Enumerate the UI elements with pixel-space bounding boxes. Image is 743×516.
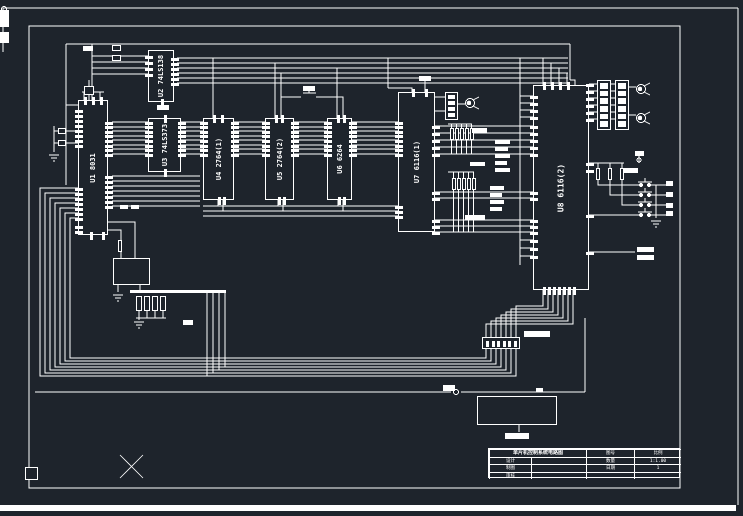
chip-pin xyxy=(586,163,594,166)
chip-pin xyxy=(105,186,113,189)
net-label xyxy=(637,255,654,260)
title-block-cell xyxy=(634,472,681,480)
chip-pin xyxy=(200,131,208,134)
chip-pin xyxy=(200,140,208,143)
chip-pin xyxy=(105,140,113,143)
chip-pin xyxy=(530,248,538,251)
chip-pin xyxy=(530,198,538,201)
chip-pin xyxy=(262,126,270,129)
chip-label: U5 2764(2) xyxy=(276,138,284,180)
chip-pin xyxy=(349,154,357,157)
pushbutton-icon[interactable] xyxy=(640,214,643,217)
pushbutton-icon[interactable] xyxy=(640,204,643,207)
chip-label: U3 74LS373 xyxy=(161,124,169,166)
contact-cell[interactable] xyxy=(136,296,142,311)
chip-pin xyxy=(262,131,270,134)
chip-pin xyxy=(291,122,299,125)
net-label xyxy=(490,200,504,204)
transistor-leads xyxy=(644,112,650,124)
resistor[interactable] xyxy=(450,128,454,140)
net-label xyxy=(443,385,455,391)
connector-pin-pad xyxy=(514,341,517,347)
pack-element xyxy=(618,121,626,127)
pack-element xyxy=(618,91,626,97)
small-component[interactable] xyxy=(112,55,121,61)
chip-pin xyxy=(432,198,440,201)
chip-pin xyxy=(105,131,113,134)
resistor[interactable] xyxy=(118,240,122,252)
title-block-cell: 制图 xyxy=(489,464,531,472)
pack-element xyxy=(448,101,455,105)
chip-pin xyxy=(395,145,403,148)
chip-pin xyxy=(324,122,332,125)
chip-pin xyxy=(221,115,224,123)
net-label xyxy=(472,128,487,133)
net-label xyxy=(470,162,485,166)
chip-pin xyxy=(586,91,594,94)
chip-pin xyxy=(432,220,440,223)
chip-pin xyxy=(432,133,440,136)
chip-pin xyxy=(432,226,440,229)
chip-pin xyxy=(425,89,428,97)
resistor[interactable] xyxy=(596,168,600,180)
chip-pin xyxy=(530,192,538,195)
connector-pin-pad xyxy=(497,341,500,347)
transistor-leads xyxy=(473,97,479,109)
chip-pin xyxy=(395,122,403,125)
transistor-leads xyxy=(644,83,650,95)
chip-pin xyxy=(231,140,239,143)
chip-pin xyxy=(324,145,332,148)
pack-element xyxy=(600,114,608,120)
chip-pin xyxy=(558,287,561,295)
chip-pin xyxy=(395,149,403,152)
chip-pin xyxy=(105,181,113,184)
title-block-cell: 单片机控制系统电路图 xyxy=(489,449,586,457)
chip-pin xyxy=(145,154,153,157)
chip-pin xyxy=(568,287,571,295)
chip-pin xyxy=(100,97,103,105)
resistor[interactable] xyxy=(608,168,612,180)
ui-left-tab[interactable] xyxy=(0,10,9,27)
chip-label: U2 74LS138 xyxy=(157,55,165,97)
resistor[interactable] xyxy=(460,128,464,140)
chip-pin xyxy=(200,135,208,138)
chip-pin xyxy=(324,126,332,129)
chip-pin xyxy=(567,82,570,90)
chip-pin xyxy=(349,122,357,125)
resistor[interactable] xyxy=(457,178,461,190)
net-label xyxy=(419,76,431,81)
chip-pin xyxy=(530,154,538,157)
chip-pin xyxy=(223,197,226,205)
chip-pin xyxy=(324,131,332,134)
chip-pin xyxy=(262,149,270,152)
resistor[interactable] xyxy=(467,178,471,190)
chip-pin xyxy=(75,218,83,221)
chip-pin xyxy=(145,126,153,129)
chip-pin xyxy=(231,145,239,148)
pack-element xyxy=(600,98,608,104)
net-label xyxy=(131,205,139,209)
title-block-cell: 比例 xyxy=(634,449,681,457)
chip-pin xyxy=(262,122,270,125)
chip-pin xyxy=(432,140,440,143)
resistor[interactable] xyxy=(452,178,456,190)
chip-pin xyxy=(75,213,83,216)
pack-element xyxy=(618,114,626,120)
chip-pin xyxy=(530,96,538,99)
chip-pin xyxy=(432,192,440,195)
chip-pin xyxy=(586,170,594,173)
chip-pin xyxy=(551,82,554,90)
chip-u5[interactable]: U5 2764(2) xyxy=(265,118,294,200)
chip-pin xyxy=(262,140,270,143)
chip-pin xyxy=(281,115,284,123)
net-label xyxy=(666,192,673,197)
chip-pin xyxy=(586,98,594,101)
chip-u4[interactable]: U4 2764(1) xyxy=(203,118,234,200)
chip-pin xyxy=(171,73,179,76)
chip-pin xyxy=(530,140,538,143)
pushbutton-icon[interactable] xyxy=(648,194,651,197)
net-label xyxy=(490,193,502,197)
net-label xyxy=(490,207,502,211)
chip-pin xyxy=(75,110,83,113)
chip-u2[interactable]: U2 74LS138 xyxy=(148,50,174,102)
chip-pin xyxy=(349,135,357,138)
title-block-cell: 审核 xyxy=(489,472,531,480)
chip-pin xyxy=(105,176,113,179)
chip-label: U7 6116(1) xyxy=(413,141,421,183)
chip-pin xyxy=(395,154,403,157)
chip-pin xyxy=(171,58,179,61)
chip-pin xyxy=(324,149,332,152)
chip-pin xyxy=(92,97,95,105)
resistor-pack-1[interactable] xyxy=(597,80,611,130)
chip-pin xyxy=(563,287,566,295)
chip-pin xyxy=(75,120,83,123)
chip-pin xyxy=(145,140,153,143)
chip-pin xyxy=(75,115,83,118)
chip-pin xyxy=(586,112,594,115)
chip-pin xyxy=(105,196,113,199)
chip-pin xyxy=(324,154,332,157)
chip-pin xyxy=(145,56,153,59)
chip-pin xyxy=(178,126,186,129)
chip-pin xyxy=(75,145,83,148)
chip-pin xyxy=(349,126,357,129)
chip-pin xyxy=(178,135,186,138)
chip-pin xyxy=(171,78,179,81)
connector-pin-pad xyxy=(508,341,511,347)
chip-pin xyxy=(343,115,346,123)
pack-element xyxy=(448,107,455,111)
net-label xyxy=(637,247,654,252)
chip-pin xyxy=(275,115,278,123)
chip-pin xyxy=(200,122,208,125)
chip-pin xyxy=(586,105,594,108)
connector-pin-pad xyxy=(492,341,495,347)
chip-pin xyxy=(75,231,83,234)
chip-pin xyxy=(586,252,594,255)
pushbutton-icon[interactable] xyxy=(648,214,651,217)
resistor[interactable] xyxy=(465,128,469,140)
net-label xyxy=(495,168,510,172)
crystal-capacitor[interactable] xyxy=(58,128,66,134)
resistor-pack-2[interactable] xyxy=(615,80,629,130)
chip-pin xyxy=(75,203,83,206)
chip-pin xyxy=(262,154,270,157)
chip-pin xyxy=(395,206,403,209)
chip-pin xyxy=(90,232,93,240)
pack-element xyxy=(618,106,626,112)
chip-pin xyxy=(178,154,186,157)
net-label xyxy=(666,211,673,216)
chip-pin xyxy=(291,131,299,134)
schematic-wires xyxy=(0,0,743,516)
chip-pin xyxy=(75,140,83,143)
connector-pin-pad xyxy=(486,341,489,347)
chip-pin xyxy=(231,131,239,134)
chip-pin xyxy=(349,145,357,148)
chip-pin xyxy=(164,115,167,123)
transistor-icon[interactable] xyxy=(467,101,471,105)
title-block-cell: 日期 xyxy=(586,464,634,472)
chip-u1[interactable]: U1 8031 xyxy=(78,100,108,235)
chip-pin xyxy=(324,140,332,143)
chip-pin xyxy=(291,140,299,143)
chip-pin xyxy=(145,122,153,125)
chip-pin xyxy=(395,211,403,214)
net-label xyxy=(183,320,193,325)
pack-element xyxy=(600,83,608,89)
chip-pin xyxy=(586,84,594,87)
title-block-cell: 1 xyxy=(634,464,681,472)
chip-pin xyxy=(395,216,403,219)
pack-element xyxy=(600,106,608,112)
chip-pin xyxy=(586,215,594,218)
chip-pin xyxy=(178,131,186,134)
chip-pin xyxy=(102,232,105,240)
chip-pin xyxy=(543,287,546,295)
resistor-pack-3[interactable] xyxy=(445,92,458,120)
pushbutton-icon[interactable] xyxy=(648,204,651,207)
net-label xyxy=(495,140,510,144)
net-label xyxy=(536,388,543,392)
chip-pin xyxy=(213,115,216,123)
chip-pin xyxy=(543,82,546,90)
pushbutton-icon[interactable] xyxy=(648,184,651,187)
chip-pin xyxy=(530,256,538,259)
chip-pin xyxy=(530,232,538,235)
chip-pin xyxy=(178,140,186,143)
chip-pin xyxy=(75,198,83,201)
chip-pin xyxy=(231,149,239,152)
transistor-icon[interactable] xyxy=(638,116,642,120)
chip-pin xyxy=(105,126,113,129)
pushbutton-icon[interactable] xyxy=(640,194,643,197)
net-label xyxy=(666,203,673,208)
chip-u6[interactable]: U6 6264 xyxy=(327,118,352,200)
chip-pin xyxy=(349,140,357,143)
bus-bar xyxy=(130,290,226,293)
small-component[interactable] xyxy=(84,86,94,95)
net-label xyxy=(635,151,644,156)
ui-left-tab[interactable] xyxy=(0,32,9,43)
chip-pin xyxy=(530,133,538,136)
chip-pin xyxy=(324,135,332,138)
chip-pin xyxy=(75,193,83,196)
net-label xyxy=(490,186,504,190)
chip-pin xyxy=(231,126,239,129)
chip-pin xyxy=(145,68,153,71)
chip-pin xyxy=(105,191,113,194)
contact-cell[interactable] xyxy=(160,296,166,311)
chip-pin xyxy=(559,82,562,90)
pack-element xyxy=(448,113,455,117)
net-label xyxy=(524,331,550,337)
chip-pin xyxy=(530,117,538,120)
net-label xyxy=(495,154,510,158)
chip-pin xyxy=(145,131,153,134)
pack-element xyxy=(618,98,626,104)
title-block-cell: 图号 xyxy=(586,449,634,457)
chip-pin xyxy=(291,135,299,138)
chip-pin xyxy=(283,197,286,205)
chip-pin xyxy=(145,74,153,77)
net-label xyxy=(83,46,93,51)
chip-pin xyxy=(105,154,113,157)
chip-pin xyxy=(395,140,403,143)
connector-header[interactable] xyxy=(482,337,520,349)
net-label xyxy=(666,181,673,186)
chip-pin xyxy=(171,83,179,86)
chip-pin xyxy=(530,226,538,229)
chip-pin xyxy=(337,115,340,123)
contact-cell[interactable] xyxy=(144,296,150,311)
small-component[interactable] xyxy=(112,45,121,51)
cad-canvas[interactable]: U1 8031U2 74LS138U3 74LS373U4 2764(1)U5 … xyxy=(0,0,743,516)
contact-cell[interactable] xyxy=(152,296,158,311)
chip-pin xyxy=(75,188,83,191)
title-block-cell xyxy=(531,457,586,465)
chip-label: U8 6116(2) xyxy=(557,163,566,211)
chip-pin xyxy=(291,149,299,152)
chip-pin xyxy=(553,287,556,295)
pack-element xyxy=(448,95,455,99)
chip-pin xyxy=(200,154,208,157)
chip-pin xyxy=(231,154,239,157)
chip-pin xyxy=(145,145,153,148)
resistor[interactable] xyxy=(472,178,476,190)
chip-pin xyxy=(105,201,113,204)
title-block-cell xyxy=(531,464,586,472)
net-label xyxy=(120,205,128,209)
chip-pin xyxy=(105,145,113,148)
optocoupler-box[interactable] xyxy=(113,258,150,285)
chip-pin xyxy=(231,135,239,138)
module-box[interactable] xyxy=(477,396,557,425)
chip-pin xyxy=(105,122,113,125)
net-label xyxy=(495,147,508,151)
chip-pin xyxy=(171,68,179,71)
title-block-cell: 数量 xyxy=(586,457,634,465)
chip-pin xyxy=(75,208,83,211)
chip-pin xyxy=(412,89,415,97)
chip-pin xyxy=(105,149,113,152)
sheet-corner-square xyxy=(25,467,38,480)
connector-pin-pad xyxy=(503,341,506,347)
chip-pin xyxy=(278,197,281,205)
title-block-cell: 设计 xyxy=(489,457,531,465)
chip-pin xyxy=(349,149,357,152)
pack-element xyxy=(600,121,608,127)
net-label xyxy=(303,86,315,91)
chip-pin xyxy=(291,154,299,157)
chip-label: U4 2764(1) xyxy=(215,138,223,180)
chip-pin xyxy=(84,97,87,105)
chip-pin xyxy=(343,197,346,205)
chip-pin xyxy=(164,169,167,177)
chip-pin xyxy=(105,206,113,209)
chip-pin xyxy=(200,145,208,148)
pack-element xyxy=(600,91,608,97)
chip-pin xyxy=(145,149,153,152)
chip-pin xyxy=(530,126,538,129)
chip-pin xyxy=(432,232,440,235)
chip-pin xyxy=(75,135,83,138)
resistor[interactable] xyxy=(462,178,466,190)
chip-u8[interactable]: U8 6116(2) xyxy=(533,85,589,290)
chip-pin xyxy=(291,126,299,129)
transistor-icon[interactable] xyxy=(638,87,642,91)
chip-pin xyxy=(218,197,221,205)
net-label xyxy=(465,215,485,220)
net-label xyxy=(157,105,169,110)
chip-pin xyxy=(548,287,551,295)
chip-u3[interactable]: U3 74LS373 xyxy=(148,118,181,172)
chip-pin xyxy=(395,131,403,134)
net-label xyxy=(495,161,507,165)
chip-pin xyxy=(530,110,538,113)
net-label xyxy=(505,433,529,439)
chip-pin xyxy=(262,145,270,148)
title-block-cell: 1:1.00 xyxy=(634,457,681,465)
chip-pin xyxy=(145,135,153,138)
chip-pin xyxy=(145,62,153,65)
chip-pin xyxy=(586,119,594,122)
chip-pin xyxy=(262,135,270,138)
chip-pin xyxy=(200,149,208,152)
chip-pin xyxy=(349,131,357,134)
chip-pin xyxy=(432,154,440,157)
chip-pin xyxy=(291,145,299,148)
title-block-cell xyxy=(531,472,586,480)
chip-pin xyxy=(338,197,341,205)
chip-u7[interactable]: U7 6116(1) xyxy=(398,92,435,232)
chip-pin xyxy=(200,126,208,129)
net-label xyxy=(624,168,638,173)
chip-pin xyxy=(432,147,440,150)
chip-pin xyxy=(171,63,179,66)
chip-pin xyxy=(395,126,403,129)
pack-element xyxy=(618,83,626,89)
resistor[interactable] xyxy=(455,128,459,140)
chip-pin xyxy=(573,287,576,295)
crystal-capacitor[interactable] xyxy=(58,140,66,146)
pushbutton-icon[interactable] xyxy=(640,184,643,187)
